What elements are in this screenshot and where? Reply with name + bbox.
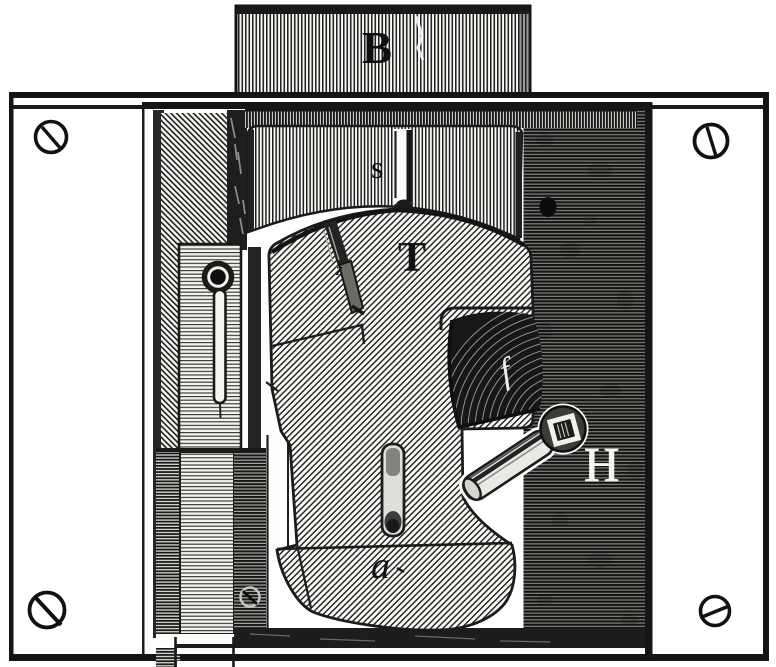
svg-text:T: T [398, 235, 426, 281]
svg-text:a: a [371, 545, 390, 587]
svg-text:H: H [584, 437, 619, 492]
svg-text:s: s [371, 149, 383, 185]
svg-text:B: B [362, 23, 392, 73]
svg-text:z: z [335, 260, 343, 279]
